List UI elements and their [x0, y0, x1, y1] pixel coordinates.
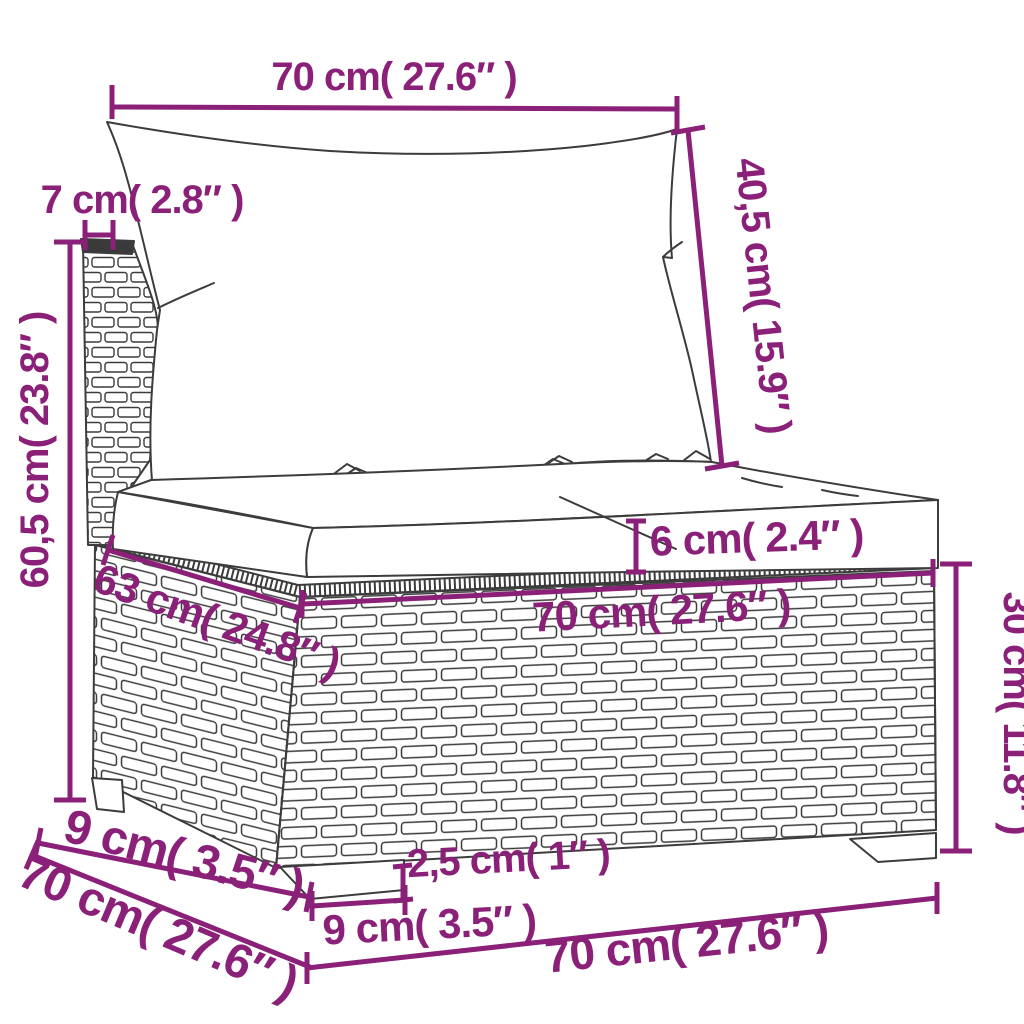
dim-base-height [940, 564, 972, 851]
dim-total-height [54, 242, 86, 800]
sofa-line-art [81, 122, 938, 899]
label-back-cushion-height: 40,5 cm( 15.9″ ) [727, 156, 800, 436]
label-backrest-thickness: 7 cm( 2.8″ ) [41, 178, 244, 222]
label-total-height: 60,5 cm( 23.8″ ) [13, 312, 57, 589]
label-seat-cushion-thickness: 6 cm( 2.4″ ) [649, 510, 864, 564]
label-base-height: 30 cm( 11.8″ ) [995, 591, 1024, 834]
label-top-width: 70 cm( 27.6″ ) [271, 55, 516, 99]
diagram-svg: 70 cm( 27.6″ ) 7 cm( 2.8″ ) 40,5 cm( 15.… [0, 0, 1024, 1024]
label-bottom-width: 70 cm( 27.6″ ) [542, 901, 830, 982]
back-cushion [107, 122, 711, 481]
dimension-diagram: 70 cm( 27.6″ ) 7 cm( 2.8″ ) 40,5 cm( 15.… [0, 0, 1024, 1024]
leg-front-right [850, 833, 936, 862]
backrest-post-cap [81, 239, 134, 254]
label-leg-height: 2,5 cm( 1″ ) [406, 832, 611, 887]
